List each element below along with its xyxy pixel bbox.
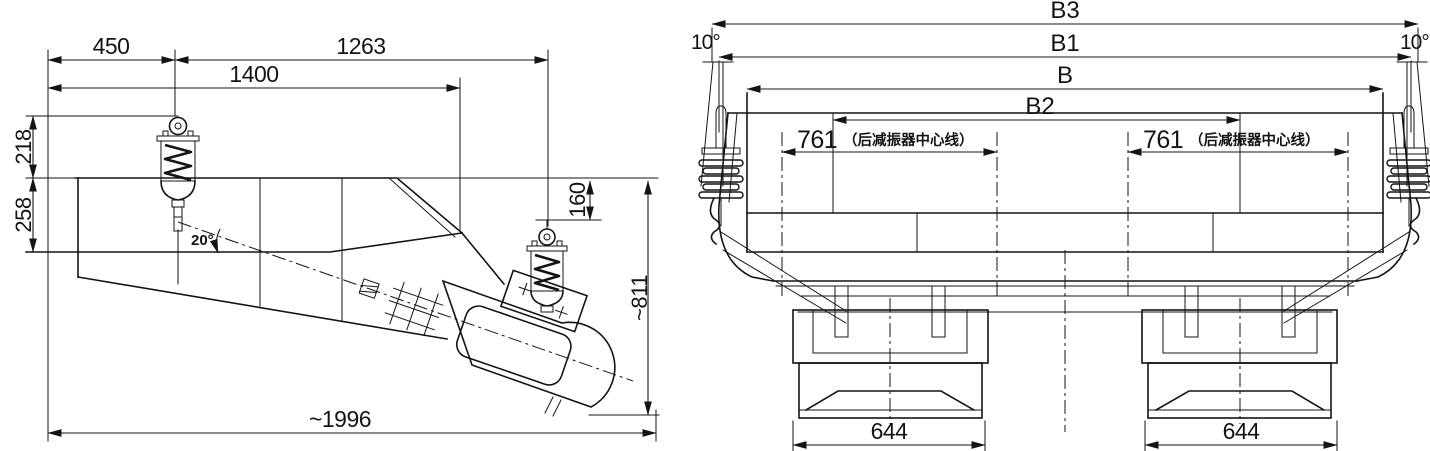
suspension-hanger-front	[157, 118, 199, 232]
dim-1400-label: 1400	[229, 61, 278, 87]
dim-1263-label: 1263	[336, 33, 385, 59]
weld-tick-mark	[545, 397, 561, 416]
vibration-motor	[443, 281, 615, 416]
technical-drawing: 450 1263 1400 218 258 160 ~811 ~1996 20°	[0, 0, 1430, 451]
dim-b-label: B	[1057, 62, 1073, 89]
dim-b2-label: B2	[1025, 93, 1054, 120]
dim-b1-label: B1	[1050, 30, 1079, 57]
dim-160-label: 160	[565, 182, 590, 217]
left-motor-housing	[793, 298, 988, 424]
dim-218-label: 218	[11, 129, 36, 164]
engineering-drawing-canvas: 450 1263 1400 218 258 160 ~811 ~1996 20°	[0, 0, 1430, 451]
suspension-hanger-rear	[527, 220, 567, 312]
dim-761-right-note: （后减振器中心线）	[1189, 131, 1320, 149]
dim-258-label: 258	[11, 197, 36, 232]
dim-761-left-note: （后减振器中心线）	[843, 131, 974, 149]
dim-angle20-label: 20°	[191, 232, 214, 249]
left-hanger-end-view	[699, 106, 743, 244]
end-dimensions: B3 B1 B B2 10° 10° 761 （后减振器中心线） 761 （后减…	[691, 0, 1429, 451]
side-view: 450 1263 1400 218 258 160 ~811 ~1996 20°	[11, 33, 659, 441]
dim-811-label: ~811	[627, 275, 652, 321]
right-motor-housing	[1142, 298, 1337, 424]
dim-761-right-value: 761	[1143, 126, 1183, 154]
side-dimensions: 450 1263 1400 218 258 160 ~811 ~1996 20°	[11, 33, 656, 433]
dim-1996-label: ~1996	[309, 406, 371, 432]
dim-450-label: 450	[93, 33, 130, 59]
dim-644-left-label: 644	[871, 418, 909, 444]
dim-b3-label: B3	[1050, 0, 1079, 24]
end-view: B3 B1 B B2 10° 10° 761 （后减振器中心线） 761 （后减…	[691, 0, 1430, 451]
dim-761-left-value: 761	[797, 126, 837, 154]
dim-tilt-right-label: 10°	[1400, 31, 1429, 54]
dim-644-right-label: 644	[1223, 418, 1261, 444]
dim-tilt-left-label: 10°	[691, 31, 720, 54]
